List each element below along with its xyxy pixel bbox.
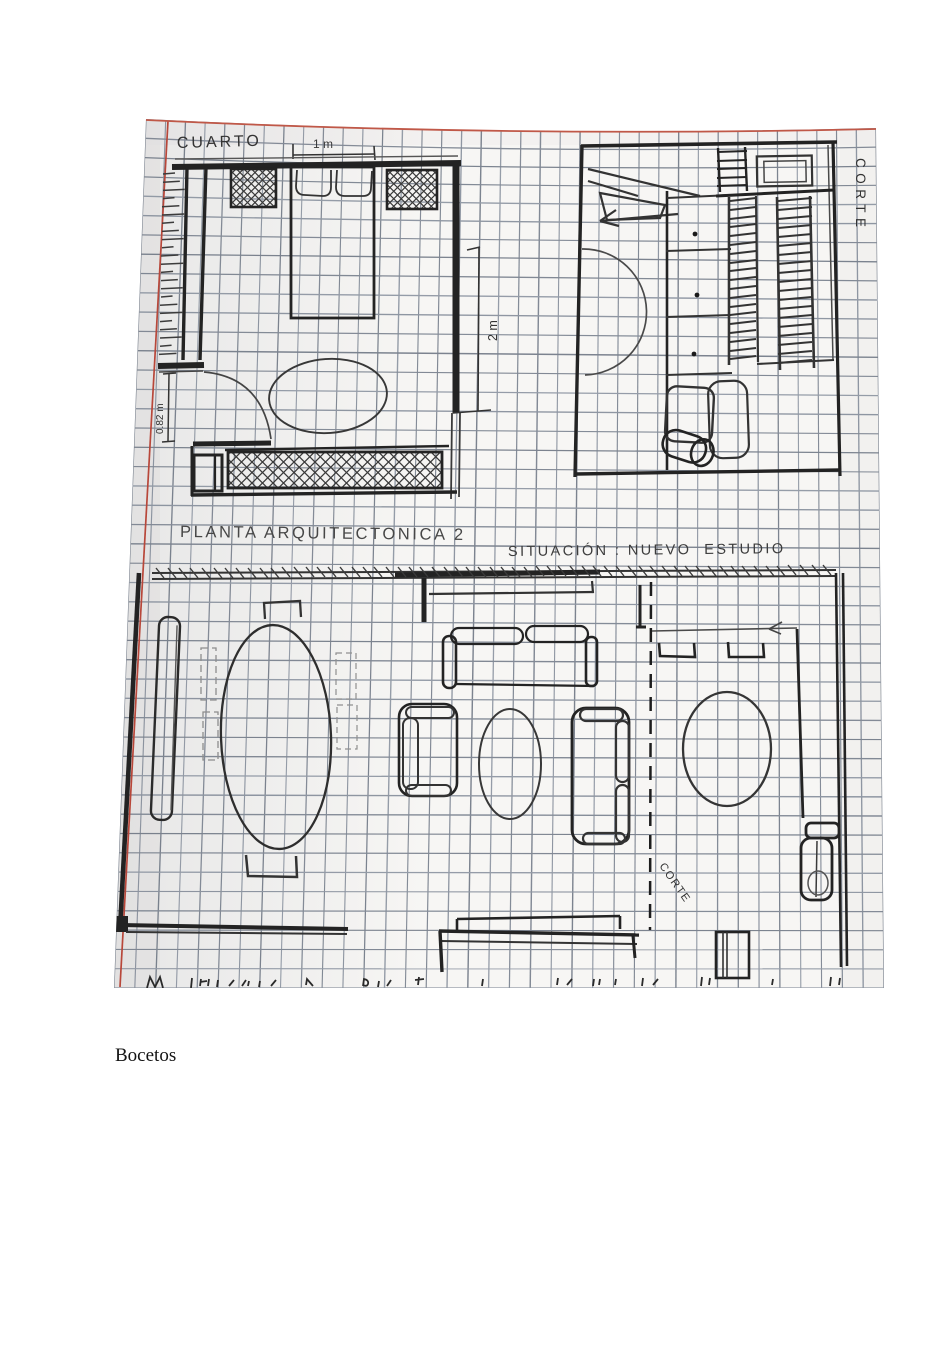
svg-text:2 m: 2 m xyxy=(486,320,500,341)
svg-text:SITUACIÓN : NUEVO ESTUDIO: SITUACIÓN : NUEVO ESTUDIO xyxy=(508,540,786,560)
svg-text:CORTE: CORTE xyxy=(853,158,868,233)
svg-text:1 m: 1 m xyxy=(313,137,333,151)
svg-text:CUARTO: CUARTO xyxy=(177,133,262,152)
svg-text:PLANTA ARQUITECTONICA 2: PLANTA ARQUITECTONICA 2 xyxy=(180,523,466,544)
svg-text:0.82 m: 0.82 m xyxy=(155,403,166,434)
